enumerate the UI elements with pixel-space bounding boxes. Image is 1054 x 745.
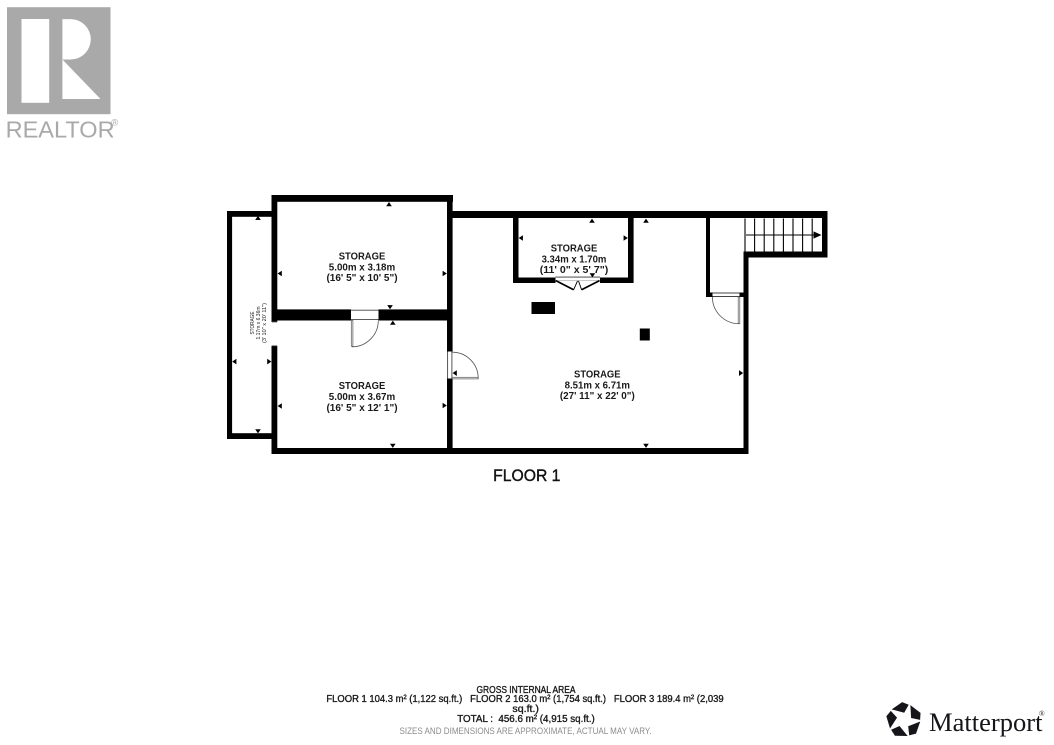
- svg-text:(16' 5" x 12' 1"): (16' 5" x 12' 1"): [326, 403, 397, 414]
- svg-text:(3' 10" x 20' 11"): (3' 10" x 20' 11"): [262, 303, 268, 343]
- svg-text:®: ®: [1039, 709, 1045, 718]
- svg-text:STORAGE: STORAGE: [551, 244, 598, 255]
- svg-text:(16' 5" x 10' 5"): (16' 5" x 10' 5"): [326, 273, 397, 284]
- svg-text:5.00m x 3.67m: 5.00m x 3.67m: [329, 392, 396, 403]
- svg-text:REALTOR: REALTOR: [6, 117, 115, 143]
- svg-text:TOTAL : 456.6 m² (4,915 sq.ft: TOTAL : 456.6 m² (4,915 sq.ft.): [457, 714, 595, 725]
- svg-text:STORAGE: STORAGE: [574, 369, 621, 380]
- svg-text:5.00m x 3.18m: 5.00m x 3.18m: [329, 262, 396, 273]
- svg-text:8.51m x 6.71m: 8.51m x 6.71m: [565, 381, 631, 392]
- svg-text:SIZES AND DIMENSIONS ARE APPRO: SIZES AND DIMENSIONS ARE APPROXIMATE, AC…: [400, 726, 652, 737]
- svg-text:STORAGE: STORAGE: [339, 381, 386, 392]
- svg-text:STORAGE: STORAGE: [339, 251, 386, 262]
- svg-text:(11' 0" x 5' 7"): (11' 0" x 5' 7"): [540, 265, 609, 276]
- svg-text:3.34m x 1.70m: 3.34m x 1.70m: [542, 255, 607, 266]
- svg-text:®: ®: [111, 117, 118, 128]
- svg-text:Matterport: Matterport: [929, 707, 1043, 737]
- svg-text:(27' 11" x 22' 0"): (27' 11" x 22' 0"): [560, 391, 635, 402]
- svg-text:FLOOR 1: FLOOR 1: [493, 466, 560, 485]
